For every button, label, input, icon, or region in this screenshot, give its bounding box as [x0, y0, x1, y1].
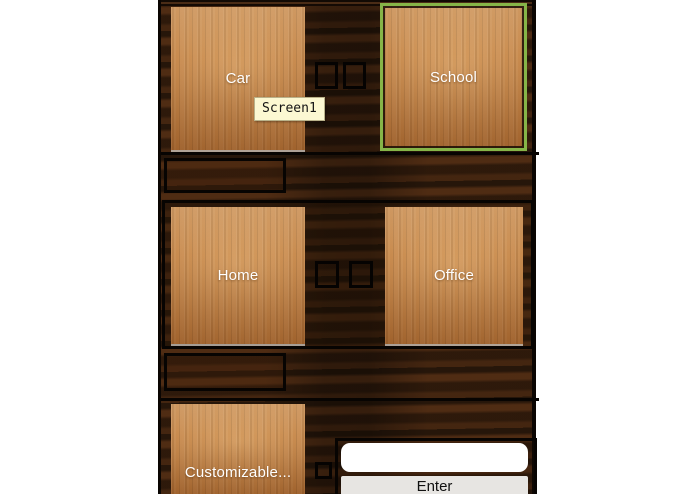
car-panel-button[interactable]: Car: [171, 7, 305, 150]
car-panel-label: Car: [226, 70, 251, 87]
row1-left-checkbox[interactable]: [315, 62, 338, 89]
row1-right-checkbox[interactable]: [343, 62, 366, 89]
row-divider-2: [161, 398, 539, 401]
office-panel-label: Office: [434, 267, 474, 284]
text-entry-input[interactable]: [341, 443, 528, 472]
school-panel-button-selected[interactable]: School: [380, 3, 527, 151]
phone-screen: Car School Screen1 Home Office Customiza…: [158, 0, 536, 494]
empty-field-1[interactable]: [164, 158, 286, 193]
customizable-panel-label: Customizable...: [185, 464, 291, 481]
empty-field-2[interactable]: [164, 353, 286, 391]
row-divider-1: [161, 152, 539, 155]
customizable-panel-button[interactable]: Customizable...: [171, 404, 305, 494]
enter-button[interactable]: Enter: [341, 476, 528, 494]
row2-right-checkbox[interactable]: [349, 261, 373, 288]
home-panel-button[interactable]: Home: [171, 207, 305, 344]
row2-left-checkbox[interactable]: [315, 261, 339, 288]
screen-name-tooltip: Screen1: [254, 97, 325, 121]
office-panel-button[interactable]: Office: [385, 207, 523, 344]
school-panel-label: School: [430, 69, 477, 86]
home-panel-label: Home: [218, 267, 259, 284]
row3-checkbox[interactable]: [315, 462, 332, 479]
app-window: Car School Screen1 Home Office Customiza…: [0, 0, 695, 494]
